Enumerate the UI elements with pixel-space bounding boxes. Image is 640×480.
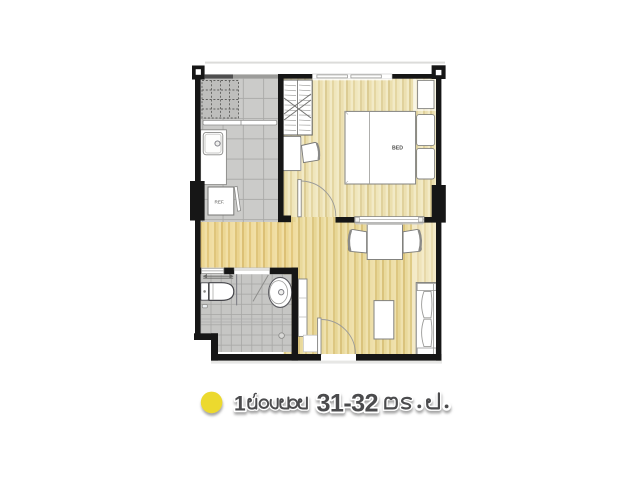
svg-text:31-32: 31-32 [317,389,378,417]
svg-text:BED: BED [392,145,403,151]
svg-text:REF.: REF. [215,200,225,205]
svg-text:1: 1 [234,392,246,415]
